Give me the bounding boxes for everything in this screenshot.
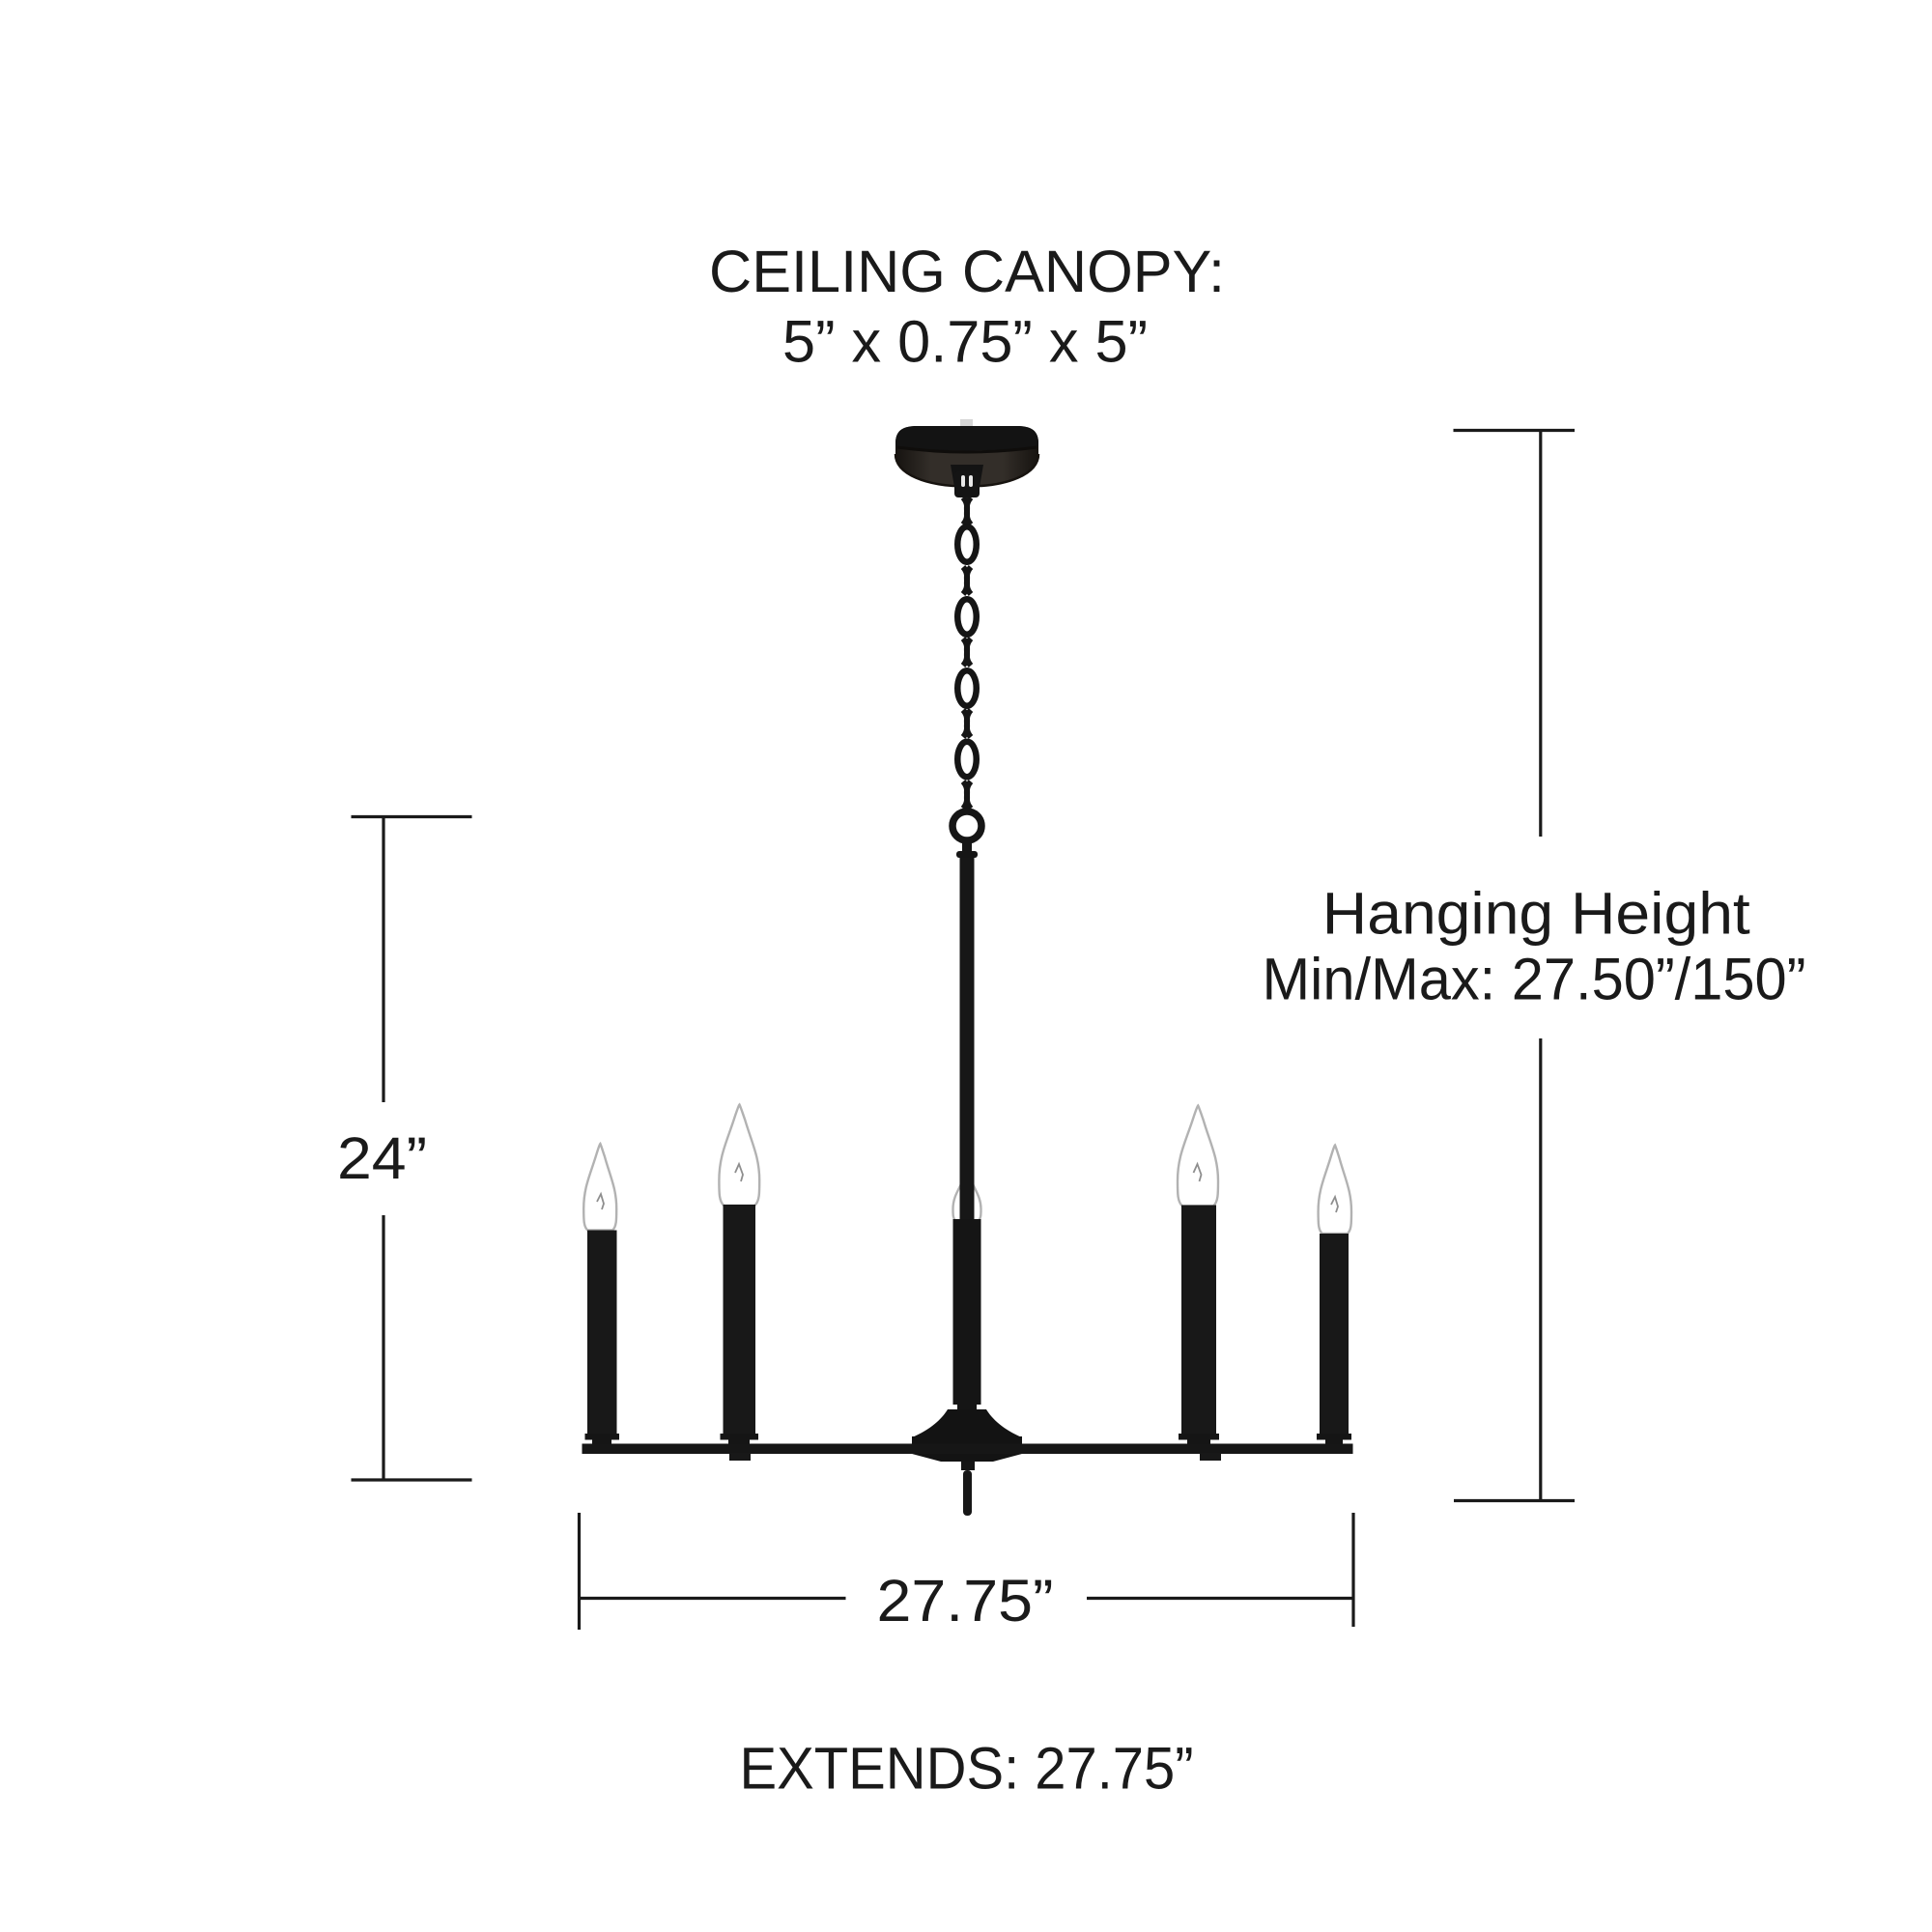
svg-text:Min/Max: 27.50”/150”: Min/Max: 27.50”/150” xyxy=(1263,947,1806,1013)
svg-text:CEILING CANOPY:: CEILING CANOPY: xyxy=(709,239,1225,305)
svg-text:Hanging Height: Hanging Height xyxy=(1322,881,1750,948)
svg-text:5” x 0.75” x 5”: 5” x 0.75” x 5” xyxy=(782,309,1148,376)
svg-text:EXTENDS: 27.75”: EXTENDS: 27.75” xyxy=(740,1736,1194,1803)
svg-text:27.75”: 27.75” xyxy=(877,1568,1054,1634)
svg-text:24”: 24” xyxy=(337,1125,427,1192)
